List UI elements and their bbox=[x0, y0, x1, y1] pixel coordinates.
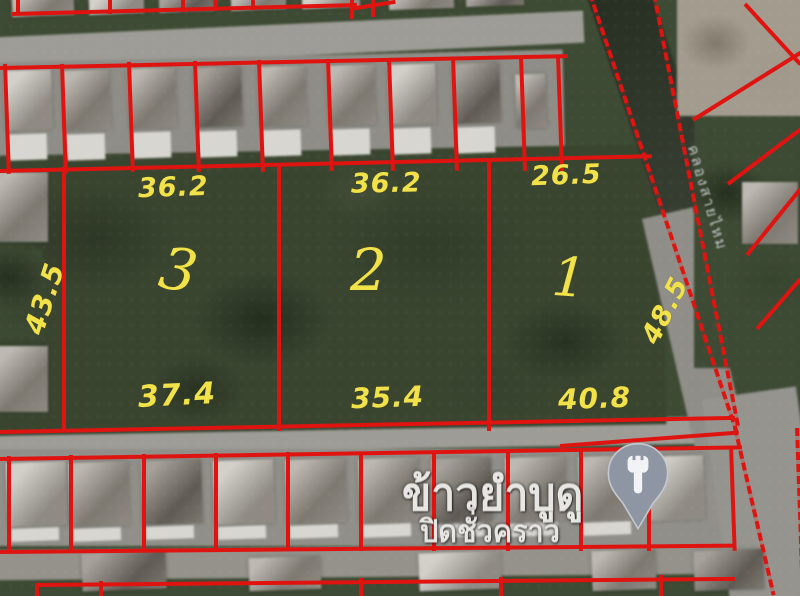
boundary-line bbox=[499, 577, 503, 596]
plot-number-1: 1 bbox=[550, 245, 589, 310]
boundary-line bbox=[214, 0, 218, 11]
restaurant-pin-icon[interactable] bbox=[606, 441, 670, 533]
boundary-line bbox=[62, 167, 66, 431]
boundary-line bbox=[286, 452, 290, 551]
boundary-line bbox=[7, 456, 11, 552]
boundary-line bbox=[69, 455, 73, 551]
boundary-line bbox=[16, 0, 20, 15]
boundary-line bbox=[181, 0, 185, 12]
plot-number-2: 2 bbox=[350, 236, 387, 304]
boundary-line bbox=[142, 454, 146, 551]
measurement-top-plot3: 36.2 bbox=[137, 171, 209, 204]
boundary-line bbox=[35, 583, 39, 596]
boundary-line bbox=[214, 453, 218, 551]
boundary-line bbox=[108, 0, 112, 14]
measurement-top-plot2: 36.2 bbox=[351, 167, 422, 199]
boundary-line bbox=[487, 162, 491, 431]
boundary-line bbox=[277, 165, 281, 431]
measurement-bottom-plot2: 35.4 bbox=[350, 380, 424, 416]
measurement-bottom-plot1: 40.8 bbox=[557, 381, 631, 417]
measurement-bottom-plot3: 37.4 bbox=[137, 376, 217, 415]
boundary-line bbox=[371, 0, 375, 17]
boundary-line bbox=[350, 0, 354, 19]
poi-status-label[interactable]: ปิดชั่วคราว bbox=[420, 506, 560, 556]
boundary-line bbox=[359, 578, 363, 596]
satellite-map-canvas[interactable]: 36.2 36.2 26.5 37.4 35.4 40.8 43.5 48.5 … bbox=[0, 0, 800, 596]
measurement-top-plot1: 26.5 bbox=[530, 159, 602, 192]
boundary-line bbox=[251, 0, 255, 10]
boundary-line bbox=[659, 575, 663, 596]
boundary-line bbox=[99, 581, 103, 596]
boundary-line bbox=[359, 452, 363, 551]
